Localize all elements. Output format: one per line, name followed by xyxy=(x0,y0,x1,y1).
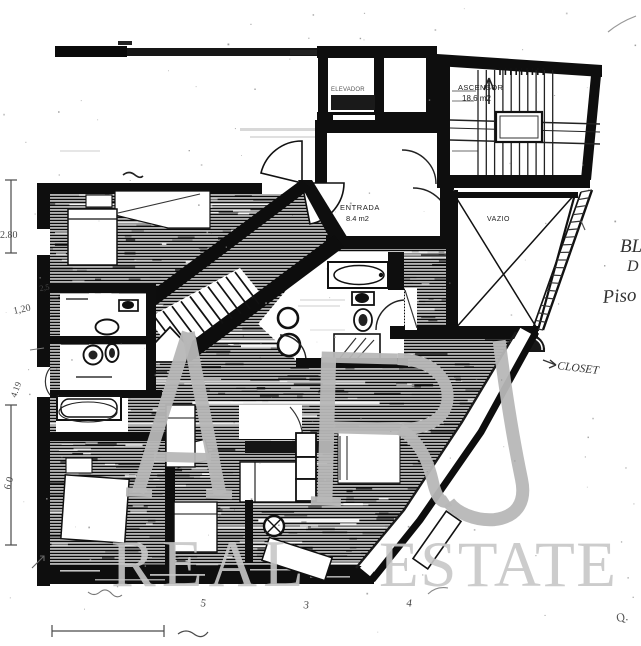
svg-text:REAL: REAL xyxy=(111,527,310,601)
svg-text:2,5: 2,5 xyxy=(39,282,50,293)
svg-text:2.80: 2.80 xyxy=(0,230,18,241)
svg-text:Q.: Q. xyxy=(615,609,629,625)
svg-text:18.6 m2: 18.6 m2 xyxy=(462,94,491,103)
svg-text:BL: BL xyxy=(620,236,641,257)
svg-text:ELEVADOR: ELEVADOR xyxy=(331,87,365,93)
svg-text:8.4 m2: 8.4 m2 xyxy=(346,214,369,223)
svg-text:ESTATE: ESTATE xyxy=(379,529,618,601)
svg-text:Piso: Piso xyxy=(601,285,637,308)
svg-text:ASCENSOR: ASCENSOR xyxy=(458,83,503,92)
svg-text:VAZIO: VAZIO xyxy=(487,216,510,223)
svg-text:D: D xyxy=(626,258,639,275)
svg-text:ENTRADA: ENTRADA xyxy=(340,203,380,212)
